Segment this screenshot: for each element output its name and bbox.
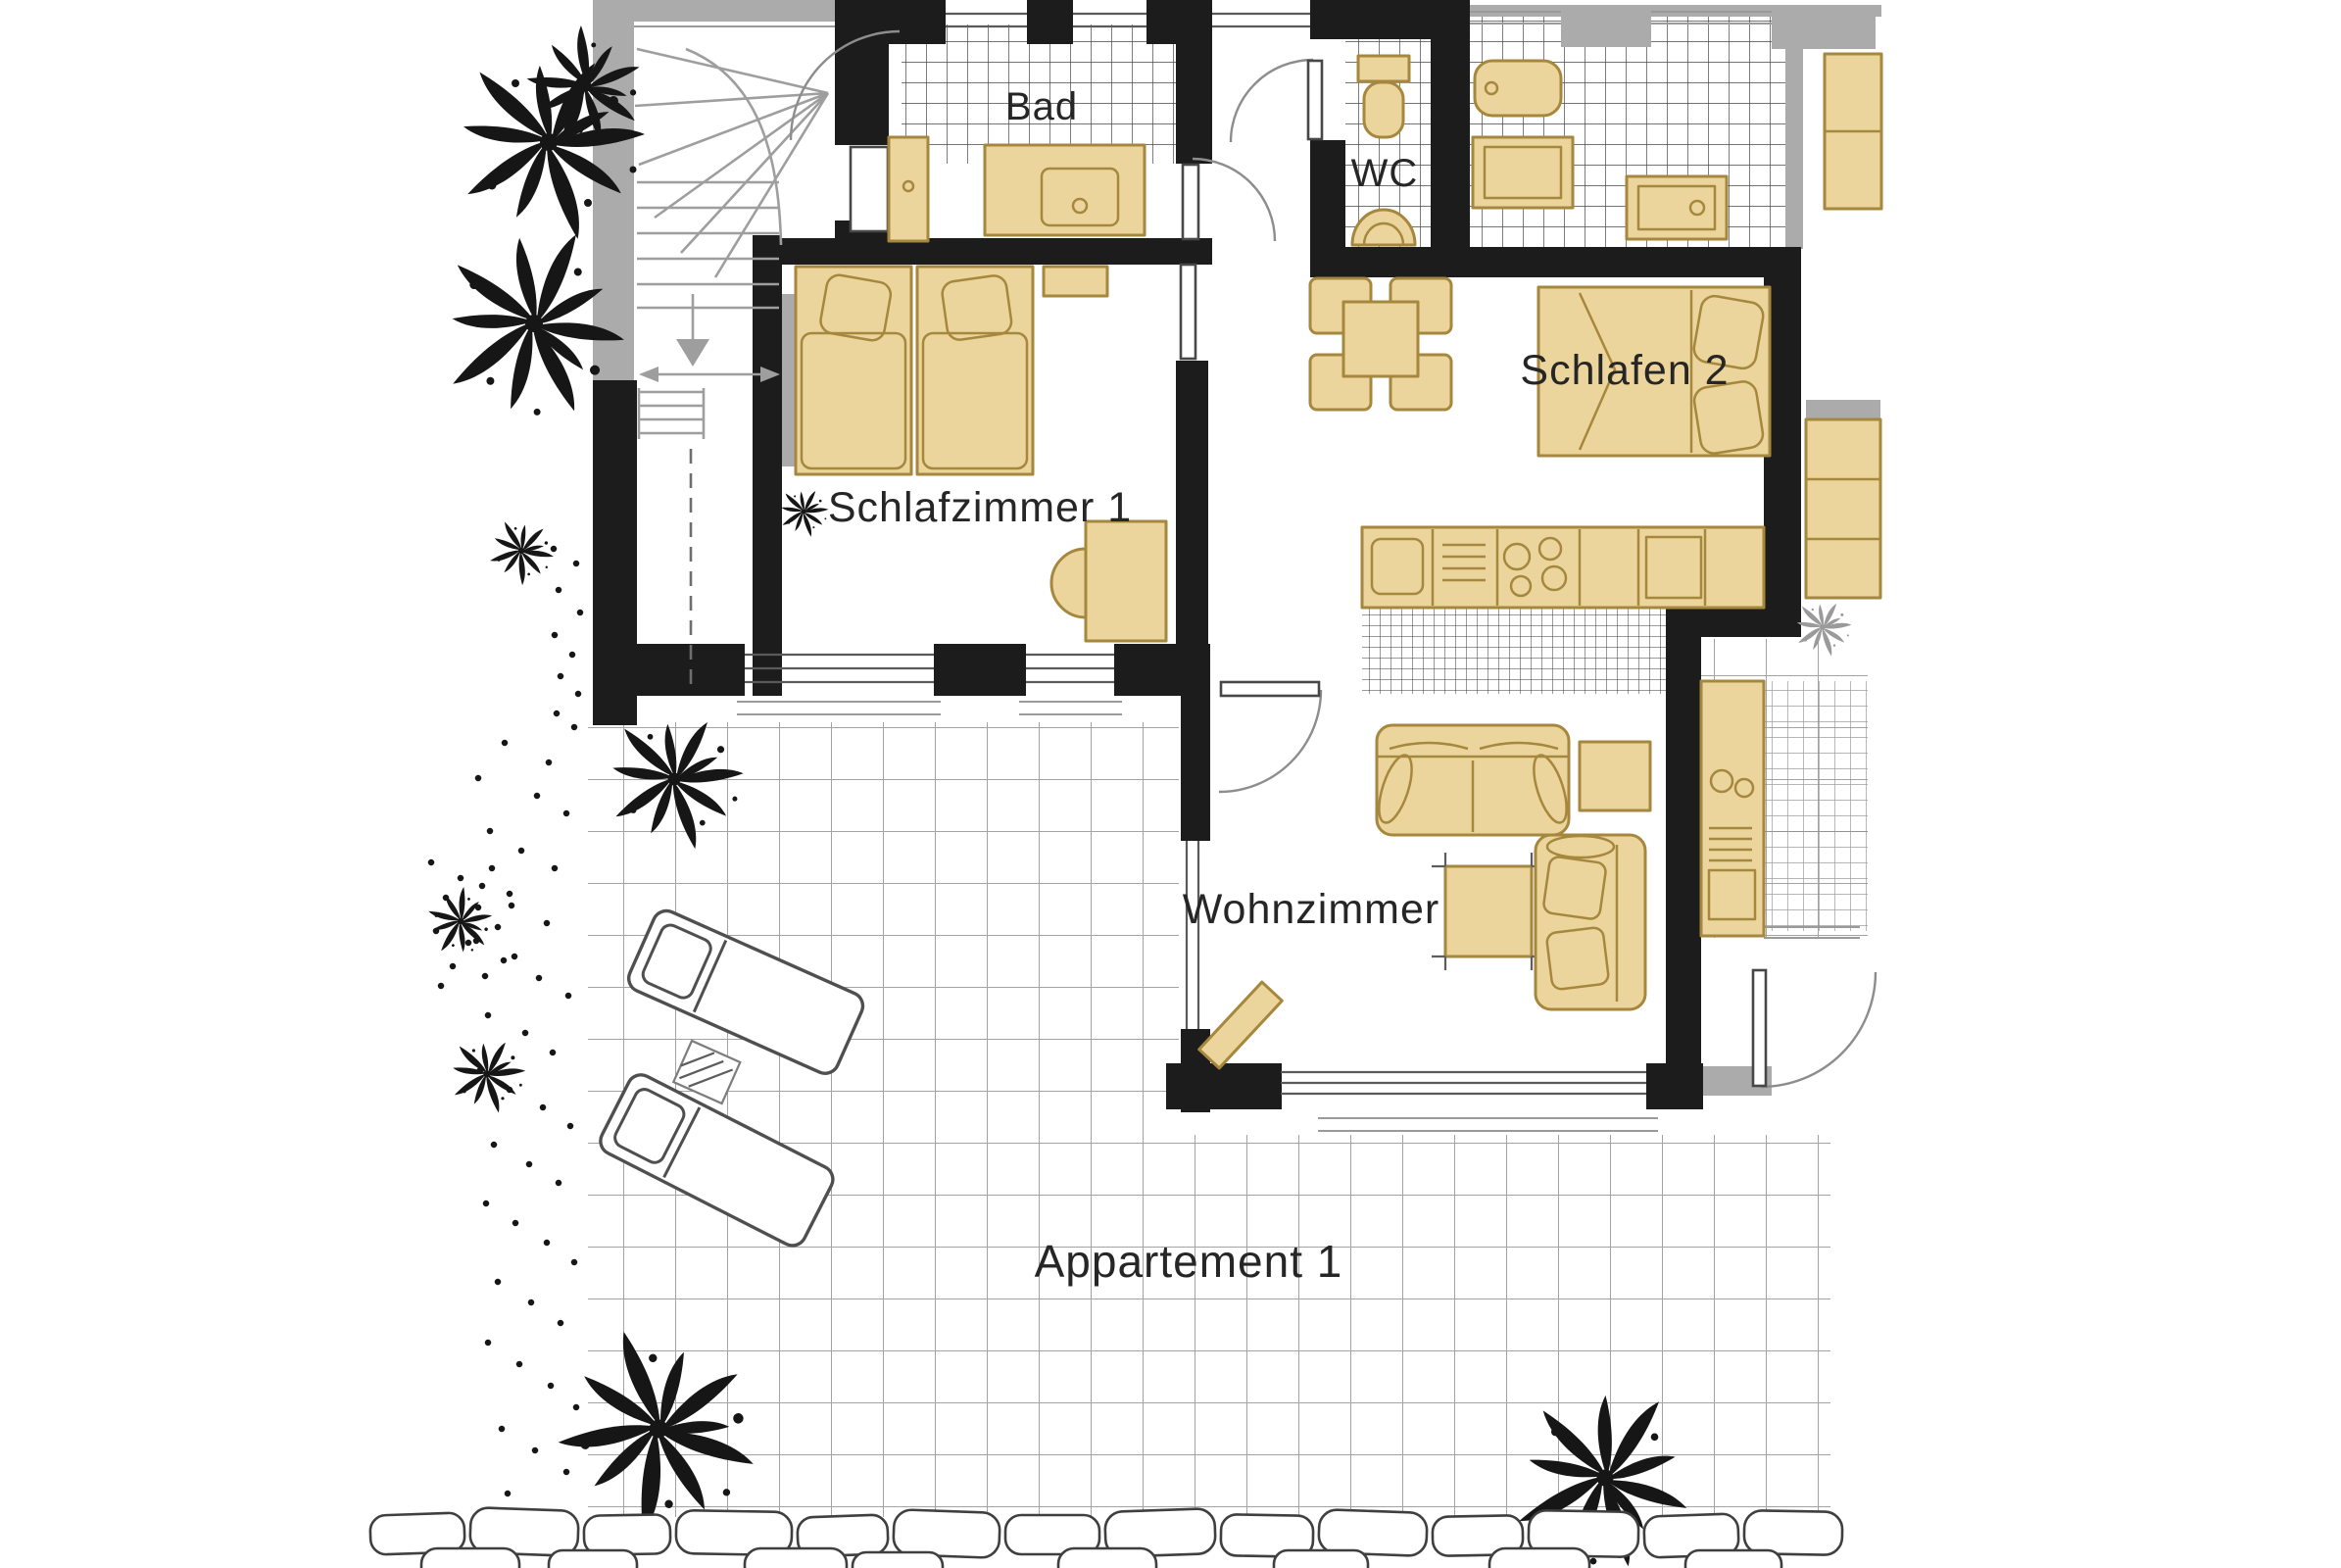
- wohnzimmer-door-leaf: [1221, 682, 1319, 696]
- wc-door-leaf: [1308, 61, 1322, 139]
- bad-door-leaf: [1183, 165, 1198, 239]
- wc-door-arc: [1231, 60, 1313, 142]
- wohnzimmer-door-arc: [1219, 690, 1321, 792]
- floor-plan-image: Bad WC Schlafen 2 Schlafzimmer 1 Wohnzim…: [0, 0, 2341, 1568]
- side-table: [1580, 742, 1650, 810]
- washer-cabinet: [889, 137, 928, 241]
- label-schlafzimmer1: Schlafzimmer 1: [828, 484, 1132, 531]
- kitchen-counter: [1362, 527, 1764, 608]
- schlafzimmer-door-leaf: [1181, 265, 1195, 359]
- gravel-speckles: [431, 549, 580, 1494]
- label-schlafen2: Schlafen 2: [1520, 347, 1729, 394]
- stair-down-arrow-icon: [676, 339, 709, 367]
- schlafzimmer1-furniture: [796, 267, 1166, 641]
- neighbor-kitchenette: [1701, 681, 1764, 936]
- desk: [1086, 521, 1166, 641]
- entry-door-leaf: [851, 147, 888, 231]
- floor-plan-page: Bad WC Schlafen 2 Schlafzimmer 1 Wohnzim…: [0, 0, 2341, 1568]
- bed: [917, 267, 1033, 474]
- bad-door-arc: [1193, 159, 1275, 241]
- toilet-tank: [1358, 56, 1409, 81]
- neighbor-door-arc: [1761, 972, 1876, 1087]
- wall-shelf: [1044, 267, 1107, 296]
- label-wohnzimmer: Wohnzimmer: [1183, 886, 1439, 933]
- bench: [1199, 982, 1283, 1068]
- neighbor-wardrobes: [1806, 54, 1881, 598]
- dining-set: [1310, 278, 1451, 410]
- label-wc: WC: [1351, 152, 1419, 195]
- bathtub: [1475, 61, 1561, 116]
- neighbor-door-leaf: [1753, 970, 1766, 1086]
- bad-fixtures: [889, 137, 1145, 241]
- label-appartement: Appartement 1: [1035, 1236, 1343, 1287]
- toilet-bowl: [1364, 82, 1403, 137]
- desk-chair: [1051, 549, 1086, 617]
- label-bad: Bad: [1005, 85, 1078, 128]
- coffee-table: [1445, 866, 1532, 956]
- bed: [796, 267, 911, 474]
- dining-table: [1343, 302, 1418, 376]
- wardrobe: [1806, 419, 1880, 598]
- vanity: [985, 145, 1145, 235]
